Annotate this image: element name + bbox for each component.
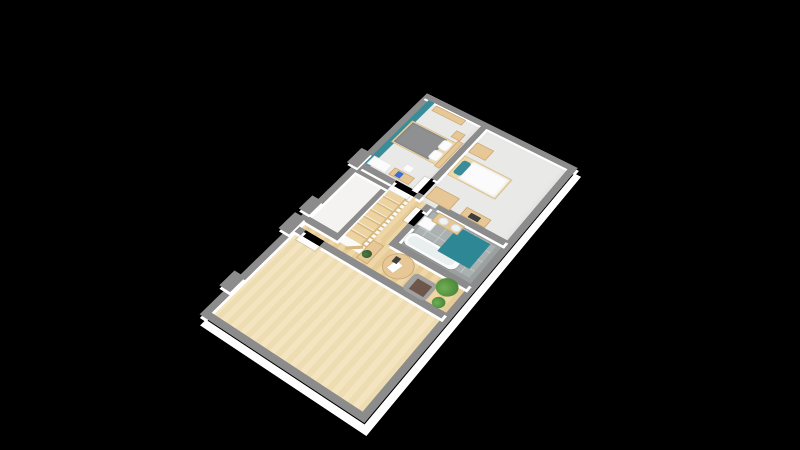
floor-plan-3d — [184, 85, 590, 438]
perspective-camera — [0, 0, 800, 450]
canvas-background — [0, 0, 800, 450]
